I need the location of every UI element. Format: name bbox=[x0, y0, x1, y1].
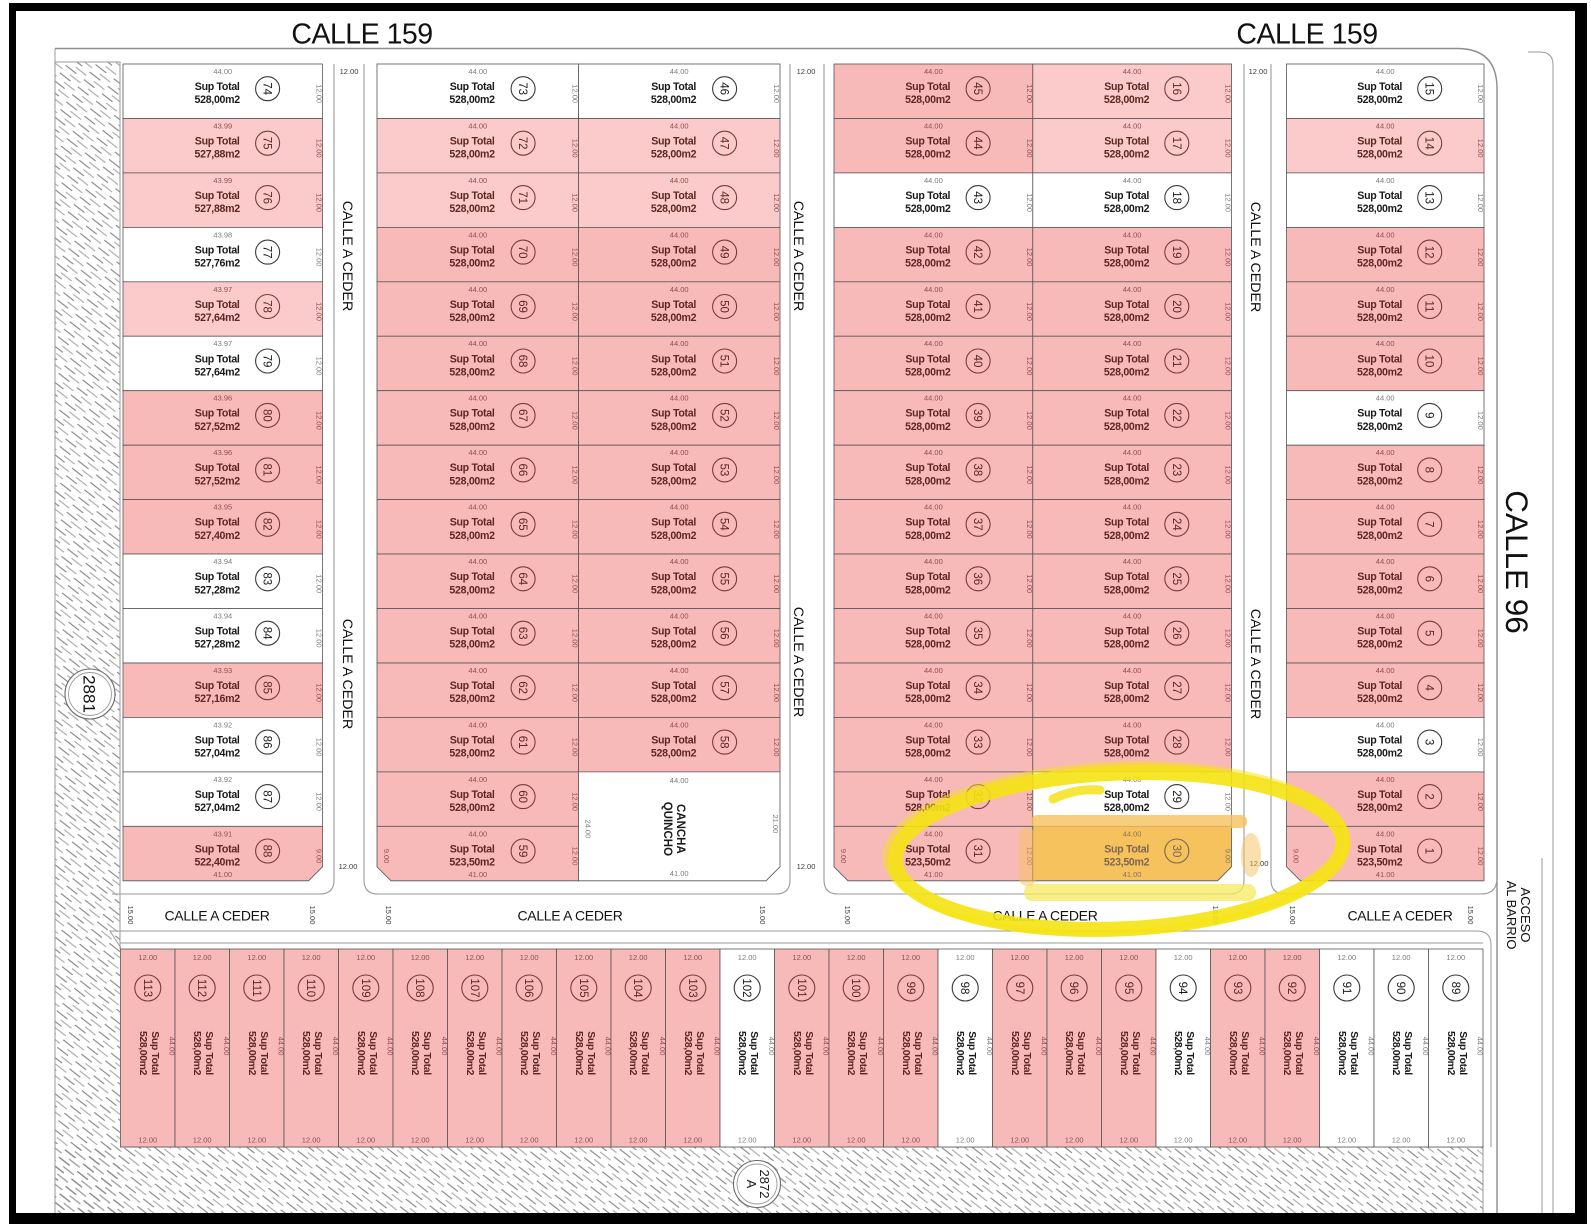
svg-text:44.00: 44.00 bbox=[924, 775, 943, 784]
svg-text:29: 29 bbox=[1170, 790, 1182, 803]
svg-text:44.00: 44.00 bbox=[1376, 67, 1395, 76]
svg-text:12.00: 12.00 bbox=[792, 953, 811, 962]
svg-text:528,00m2: 528,00m2 bbox=[1104, 258, 1150, 270]
svg-text:Sup Total: Sup Total bbox=[195, 299, 240, 311]
svg-text:528,00m2: 528,00m2 bbox=[651, 149, 697, 161]
svg-text:100: 100 bbox=[849, 978, 861, 997]
svg-text:46: 46 bbox=[718, 82, 730, 95]
svg-text:43.92: 43.92 bbox=[213, 775, 232, 784]
svg-text:CALLE A CEDER: CALLE A CEDER bbox=[339, 201, 355, 311]
svg-text:Sup Total: Sup Total bbox=[1357, 81, 1402, 93]
svg-text:89: 89 bbox=[1449, 982, 1461, 995]
svg-text:10: 10 bbox=[1423, 355, 1435, 368]
svg-text:528,00m2: 528,00m2 bbox=[1357, 94, 1403, 106]
svg-text:12.00: 12.00 bbox=[1476, 248, 1485, 267]
svg-text:12.00: 12.00 bbox=[1228, 1136, 1247, 1145]
svg-text:528,00m2: 528,00m2 bbox=[845, 1031, 857, 1076]
svg-text:Sup Total: Sup Total bbox=[651, 353, 696, 365]
svg-text:81: 81 bbox=[261, 464, 273, 477]
svg-text:44.00: 44.00 bbox=[670, 67, 689, 76]
svg-text:528,00m2: 528,00m2 bbox=[1104, 802, 1150, 814]
svg-text:12.00: 12.00 bbox=[315, 248, 324, 267]
svg-text:12.00: 12.00 bbox=[738, 1136, 757, 1145]
svg-text:528,00m2: 528,00m2 bbox=[1104, 475, 1150, 487]
svg-text:CANCHA: CANCHA bbox=[674, 804, 686, 854]
svg-text:69: 69 bbox=[516, 300, 528, 313]
svg-text:41: 41 bbox=[971, 300, 983, 313]
svg-text:47: 47 bbox=[718, 137, 730, 150]
svg-text:528,00m2: 528,00m2 bbox=[518, 1031, 530, 1076]
svg-text:12.00: 12.00 bbox=[1476, 84, 1485, 103]
svg-text:43.91: 43.91 bbox=[213, 829, 232, 838]
svg-text:12.00: 12.00 bbox=[1392, 1136, 1411, 1145]
svg-text:44.00: 44.00 bbox=[468, 829, 487, 838]
svg-text:Sup Total: Sup Total bbox=[1104, 571, 1149, 583]
svg-text:12.00: 12.00 bbox=[772, 248, 781, 267]
svg-text:8: 8 bbox=[1423, 467, 1435, 473]
svg-text:528,00m2: 528,00m2 bbox=[954, 1031, 966, 1076]
svg-text:12.00: 12.00 bbox=[901, 953, 920, 962]
svg-text:41.00: 41.00 bbox=[1376, 870, 1395, 879]
svg-text:43.97: 43.97 bbox=[213, 285, 232, 294]
svg-text:43.93: 43.93 bbox=[213, 666, 232, 675]
svg-text:Sup Total: Sup Total bbox=[367, 1031, 379, 1075]
svg-text:Sup Total: Sup Total bbox=[651, 517, 696, 529]
svg-text:Sup Total: Sup Total bbox=[450, 81, 495, 93]
svg-text:12.00: 12.00 bbox=[1476, 357, 1485, 376]
svg-text:44.00: 44.00 bbox=[924, 339, 943, 348]
svg-text:12.00: 12.00 bbox=[1283, 1136, 1302, 1145]
svg-text:528,00m2: 528,00m2 bbox=[905, 748, 951, 760]
svg-text:Sup Total: Sup Total bbox=[1104, 353, 1149, 365]
svg-text:54: 54 bbox=[718, 518, 730, 531]
svg-text:12.00: 12.00 bbox=[772, 520, 781, 539]
svg-text:41.00: 41.00 bbox=[1123, 870, 1142, 879]
svg-text:527,28m2: 527,28m2 bbox=[195, 639, 241, 651]
svg-text:12.00: 12.00 bbox=[520, 953, 539, 962]
svg-text:44.00: 44.00 bbox=[468, 339, 487, 348]
svg-text:43.99: 43.99 bbox=[213, 121, 232, 130]
svg-text:Sup Total: Sup Total bbox=[1104, 244, 1149, 256]
svg-text:15: 15 bbox=[1423, 82, 1435, 95]
svg-text:44.00: 44.00 bbox=[670, 339, 689, 348]
svg-text:6: 6 bbox=[1423, 576, 1435, 582]
svg-text:12.00: 12.00 bbox=[315, 84, 324, 103]
svg-text:12.00: 12.00 bbox=[797, 862, 816, 871]
svg-text:528,00m2: 528,00m2 bbox=[1357, 149, 1403, 161]
svg-text:Sup Total: Sup Total bbox=[905, 136, 950, 148]
svg-text:Sup Total: Sup Total bbox=[1357, 843, 1402, 855]
svg-text:527,28m2: 527,28m2 bbox=[195, 584, 241, 596]
svg-text:26: 26 bbox=[1170, 627, 1182, 640]
svg-text:12: 12 bbox=[1423, 246, 1435, 259]
svg-text:528,00m2: 528,00m2 bbox=[409, 1031, 421, 1076]
svg-text:CALLE A CEDER: CALLE A CEDER bbox=[517, 908, 622, 924]
svg-text:Sup Total: Sup Total bbox=[1104, 462, 1149, 474]
svg-text:44.00: 44.00 bbox=[1376, 666, 1395, 675]
svg-text:QUINCHO: QUINCHO bbox=[661, 802, 673, 856]
svg-text:44.00: 44.00 bbox=[468, 612, 487, 621]
svg-text:44.00: 44.00 bbox=[1376, 612, 1395, 621]
svg-text:Sup Total: Sup Total bbox=[1357, 517, 1402, 529]
svg-text:527,52m2: 527,52m2 bbox=[195, 421, 241, 433]
svg-text:20: 20 bbox=[1170, 300, 1182, 313]
svg-text:Sup Total: Sup Total bbox=[905, 571, 950, 583]
svg-text:Sup Total: Sup Total bbox=[905, 734, 950, 746]
svg-text:12.00: 12.00 bbox=[772, 84, 781, 103]
svg-text:83: 83 bbox=[261, 572, 273, 585]
svg-text:44.00: 44.00 bbox=[924, 557, 943, 566]
svg-text:CALLE A CEDER: CALLE A CEDER bbox=[1247, 609, 1263, 719]
svg-text:31: 31 bbox=[971, 845, 983, 858]
svg-text:528,00m2: 528,00m2 bbox=[1357, 258, 1403, 270]
svg-text:Sup Total: Sup Total bbox=[905, 81, 950, 93]
svg-text:Sup Total: Sup Total bbox=[450, 789, 495, 801]
svg-text:Sup Total: Sup Total bbox=[1357, 190, 1402, 202]
svg-text:44.00: 44.00 bbox=[1376, 775, 1395, 784]
svg-text:12.00: 12.00 bbox=[772, 629, 781, 648]
svg-text:528,00m2: 528,00m2 bbox=[191, 1031, 203, 1076]
svg-text:2: 2 bbox=[1423, 793, 1435, 799]
svg-text:60: 60 bbox=[516, 790, 528, 803]
svg-text:12.00: 12.00 bbox=[574, 953, 593, 962]
svg-text:12.00: 12.00 bbox=[340, 67, 359, 76]
svg-text:Sup Total: Sup Total bbox=[651, 190, 696, 202]
svg-text:44.00: 44.00 bbox=[468, 448, 487, 457]
svg-text:Sup Total: Sup Total bbox=[1104, 408, 1149, 420]
svg-text:34: 34 bbox=[971, 681, 983, 694]
svg-text:21.00: 21.00 bbox=[771, 815, 780, 834]
svg-text:528,00m2: 528,00m2 bbox=[1104, 367, 1150, 379]
svg-text:74: 74 bbox=[261, 82, 273, 95]
svg-text:106: 106 bbox=[522, 978, 534, 997]
svg-text:528,00m2: 528,00m2 bbox=[449, 802, 495, 814]
svg-text:44.00: 44.00 bbox=[1123, 339, 1142, 348]
svg-text:528,00m2: 528,00m2 bbox=[449, 149, 495, 161]
svg-text:78: 78 bbox=[261, 300, 273, 313]
svg-text:CALLE A CEDER: CALLE A CEDER bbox=[1347, 908, 1452, 924]
svg-text:44.00: 44.00 bbox=[1476, 1037, 1485, 1056]
svg-text:12.00: 12.00 bbox=[847, 953, 866, 962]
svg-text:25: 25 bbox=[1170, 572, 1182, 585]
svg-text:Sup Total: Sup Total bbox=[450, 734, 495, 746]
svg-text:67: 67 bbox=[516, 409, 528, 422]
svg-text:528,00m2: 528,00m2 bbox=[449, 312, 495, 324]
svg-text:Sup Total: Sup Total bbox=[748, 1031, 760, 1075]
svg-text:528,00m2: 528,00m2 bbox=[449, 367, 495, 379]
svg-text:44.00: 44.00 bbox=[1123, 612, 1142, 621]
svg-text:9.00: 9.00 bbox=[315, 849, 324, 864]
svg-text:528,00m2: 528,00m2 bbox=[900, 1031, 912, 1076]
svg-text:24: 24 bbox=[1170, 518, 1182, 531]
svg-text:528,00m2: 528,00m2 bbox=[449, 584, 495, 596]
svg-text:15.00: 15.00 bbox=[1288, 906, 1297, 925]
svg-text:76: 76 bbox=[261, 191, 273, 204]
svg-text:111: 111 bbox=[250, 979, 262, 996]
svg-text:528,00m2: 528,00m2 bbox=[449, 203, 495, 215]
svg-text:13: 13 bbox=[1423, 191, 1435, 204]
svg-text:528,00m2: 528,00m2 bbox=[1118, 1031, 1130, 1076]
svg-text:Sup Total: Sup Total bbox=[195, 408, 240, 420]
svg-text:ACCESO: ACCESO bbox=[1518, 888, 1533, 943]
svg-text:12.00: 12.00 bbox=[956, 1136, 975, 1145]
svg-text:44.00: 44.00 bbox=[1123, 448, 1142, 457]
svg-text:528,00m2: 528,00m2 bbox=[449, 475, 495, 487]
svg-text:528,00m2: 528,00m2 bbox=[1104, 639, 1150, 651]
svg-text:84: 84 bbox=[261, 627, 273, 640]
svg-text:57: 57 bbox=[718, 681, 730, 694]
svg-text:12.00: 12.00 bbox=[1476, 738, 1485, 757]
svg-text:12.00: 12.00 bbox=[315, 139, 324, 158]
svg-text:527,64m2: 527,64m2 bbox=[195, 367, 241, 379]
svg-text:528,00m2: 528,00m2 bbox=[905, 639, 951, 651]
svg-text:14: 14 bbox=[1423, 137, 1435, 150]
svg-text:523,50m2: 523,50m2 bbox=[1357, 857, 1403, 869]
svg-text:23: 23 bbox=[1170, 464, 1182, 477]
svg-text:43.94: 43.94 bbox=[213, 612, 232, 621]
svg-text:527,16m2: 527,16m2 bbox=[195, 693, 241, 705]
svg-text:12.00: 12.00 bbox=[1476, 629, 1485, 648]
svg-text:12.00: 12.00 bbox=[772, 302, 781, 321]
svg-text:15.00: 15.00 bbox=[843, 906, 852, 925]
svg-text:12.00: 12.00 bbox=[315, 792, 324, 811]
svg-text:Sup Total: Sup Total bbox=[195, 734, 240, 746]
svg-text:Sup Total: Sup Total bbox=[905, 408, 950, 420]
svg-text:91: 91 bbox=[1340, 982, 1352, 995]
svg-text:528,00m2: 528,00m2 bbox=[651, 203, 697, 215]
svg-text:12.00: 12.00 bbox=[1283, 953, 1302, 962]
svg-text:A: A bbox=[744, 1180, 759, 1189]
svg-text:44.00: 44.00 bbox=[670, 230, 689, 239]
svg-text:44.00: 44.00 bbox=[1123, 557, 1142, 566]
svg-text:66: 66 bbox=[516, 464, 528, 477]
svg-text:Sup Total: Sup Total bbox=[905, 244, 950, 256]
svg-text:Sup Total: Sup Total bbox=[195, 190, 240, 202]
svg-text:65: 65 bbox=[516, 518, 528, 531]
svg-text:12.00: 12.00 bbox=[1337, 953, 1356, 962]
svg-text:12.00: 12.00 bbox=[1476, 411, 1485, 430]
svg-text:93: 93 bbox=[1231, 982, 1243, 995]
svg-text:Sup Total: Sup Total bbox=[195, 136, 240, 148]
svg-text:CALLE A CEDER: CALLE A CEDER bbox=[339, 619, 355, 729]
svg-text:528,00m2: 528,00m2 bbox=[1357, 203, 1403, 215]
svg-text:38: 38 bbox=[971, 464, 983, 477]
svg-text:Sup Total: Sup Total bbox=[421, 1031, 433, 1075]
svg-text:Sup Total: Sup Total bbox=[1293, 1031, 1305, 1075]
svg-text:12.00: 12.00 bbox=[1224, 139, 1233, 158]
svg-text:12.00: 12.00 bbox=[339, 862, 358, 871]
svg-text:12.00: 12.00 bbox=[1224, 248, 1233, 267]
svg-text:Sup Total: Sup Total bbox=[1104, 299, 1149, 311]
svg-text:528,00m2: 528,00m2 bbox=[651, 367, 697, 379]
svg-text:44.00: 44.00 bbox=[670, 666, 689, 675]
svg-text:Sup Total: Sup Total bbox=[195, 517, 240, 529]
svg-text:90: 90 bbox=[1394, 982, 1406, 995]
svg-text:527,88m2: 527,88m2 bbox=[195, 149, 241, 161]
svg-text:19: 19 bbox=[1170, 246, 1182, 259]
svg-text:Sup Total: Sup Total bbox=[1184, 1031, 1196, 1075]
svg-text:21: 21 bbox=[1170, 355, 1182, 368]
svg-text:44.00: 44.00 bbox=[468, 666, 487, 675]
svg-text:12.00: 12.00 bbox=[193, 1136, 212, 1145]
svg-text:12.00: 12.00 bbox=[1224, 683, 1233, 702]
svg-text:12.00: 12.00 bbox=[315, 411, 324, 430]
svg-text:102: 102 bbox=[740, 978, 752, 997]
svg-text:Sup Total: Sup Total bbox=[195, 680, 240, 692]
svg-text:44.00: 44.00 bbox=[924, 285, 943, 294]
svg-text:Sup Total: Sup Total bbox=[450, 136, 495, 148]
svg-text:12.00: 12.00 bbox=[772, 683, 781, 702]
svg-text:12.00: 12.00 bbox=[1119, 1136, 1138, 1145]
svg-text:Sup Total: Sup Total bbox=[195, 789, 240, 801]
svg-text:59: 59 bbox=[516, 845, 528, 858]
svg-text:44.00: 44.00 bbox=[1123, 394, 1142, 403]
svg-text:27: 27 bbox=[1170, 681, 1182, 694]
svg-text:44.00: 44.00 bbox=[924, 829, 943, 838]
svg-text:55: 55 bbox=[718, 572, 730, 585]
svg-text:Sup Total: Sup Total bbox=[1130, 1031, 1142, 1075]
svg-text:12.00: 12.00 bbox=[1476, 792, 1485, 811]
svg-text:Sup Total: Sup Total bbox=[450, 680, 495, 692]
svg-text:7: 7 bbox=[1423, 521, 1435, 527]
svg-text:528,00m2: 528,00m2 bbox=[905, 149, 951, 161]
svg-text:44.00: 44.00 bbox=[924, 720, 943, 729]
svg-text:98: 98 bbox=[958, 982, 970, 995]
svg-text:12.00: 12.00 bbox=[1249, 67, 1268, 76]
svg-text:44.00: 44.00 bbox=[1376, 230, 1395, 239]
svg-text:44.00: 44.00 bbox=[924, 121, 943, 130]
svg-text:528,00m2: 528,00m2 bbox=[1357, 693, 1403, 705]
svg-text:44.00: 44.00 bbox=[1123, 176, 1142, 185]
svg-text:12.00: 12.00 bbox=[772, 466, 781, 485]
svg-text:Sup Total: Sup Total bbox=[195, 81, 240, 93]
svg-text:44.00: 44.00 bbox=[924, 230, 943, 239]
svg-text:528,00m2: 528,00m2 bbox=[449, 748, 495, 760]
svg-text:528,00m2: 528,00m2 bbox=[1390, 1031, 1402, 1076]
svg-text:Sup Total: Sup Total bbox=[905, 353, 950, 365]
svg-text:528,00m2: 528,00m2 bbox=[905, 584, 951, 596]
svg-text:12.00: 12.00 bbox=[315, 302, 324, 321]
svg-text:12.00: 12.00 bbox=[193, 953, 212, 962]
svg-text:43.92: 43.92 bbox=[213, 720, 232, 729]
svg-text:Sup Total: Sup Total bbox=[1357, 353, 1402, 365]
svg-text:Sup Total: Sup Total bbox=[195, 462, 240, 474]
svg-text:44.00: 44.00 bbox=[468, 121, 487, 130]
svg-text:528,00m2: 528,00m2 bbox=[195, 94, 241, 106]
svg-text:Sup Total: Sup Total bbox=[450, 408, 495, 420]
svg-text:9.00: 9.00 bbox=[1224, 849, 1233, 864]
svg-text:12.00: 12.00 bbox=[1065, 953, 1084, 962]
svg-text:44.00: 44.00 bbox=[1376, 285, 1395, 294]
svg-text:12.00: 12.00 bbox=[1065, 1136, 1084, 1145]
svg-text:97: 97 bbox=[1013, 982, 1025, 995]
svg-text:12.00: 12.00 bbox=[1174, 1136, 1193, 1145]
svg-text:528,00m2: 528,00m2 bbox=[300, 1031, 312, 1076]
svg-text:528,00m2: 528,00m2 bbox=[1281, 1031, 1293, 1076]
svg-text:528,00m2: 528,00m2 bbox=[1357, 475, 1403, 487]
svg-text:528,00m2: 528,00m2 bbox=[449, 258, 495, 270]
svg-text:Sup Total: Sup Total bbox=[476, 1031, 488, 1075]
svg-text:Sup Total: Sup Total bbox=[857, 1031, 869, 1075]
svg-text:44.00: 44.00 bbox=[468, 394, 487, 403]
svg-text:527,04m2: 527,04m2 bbox=[195, 748, 241, 760]
svg-text:75: 75 bbox=[261, 137, 273, 150]
svg-text:62: 62 bbox=[516, 681, 528, 694]
svg-text:Sup Total: Sup Total bbox=[585, 1031, 597, 1075]
svg-text:44.00: 44.00 bbox=[1376, 448, 1395, 457]
svg-text:528,00m2: 528,00m2 bbox=[651, 421, 697, 433]
svg-text:12.00: 12.00 bbox=[1224, 792, 1233, 811]
svg-text:528,00m2: 528,00m2 bbox=[1104, 203, 1150, 215]
svg-text:Sup Total: Sup Total bbox=[1104, 843, 1149, 855]
svg-text:22: 22 bbox=[1170, 409, 1182, 422]
svg-text:CALLE A CEDER: CALLE A CEDER bbox=[790, 201, 806, 311]
svg-text:79: 79 bbox=[261, 355, 273, 368]
svg-text:44.00: 44.00 bbox=[1376, 503, 1395, 512]
svg-text:Sup Total: Sup Total bbox=[1357, 136, 1402, 148]
svg-text:12.00: 12.00 bbox=[772, 411, 781, 430]
svg-text:16: 16 bbox=[1170, 82, 1182, 95]
svg-text:Sup Total: Sup Total bbox=[905, 190, 950, 202]
svg-text:2881: 2881 bbox=[80, 675, 99, 713]
svg-text:12.00: 12.00 bbox=[1476, 466, 1485, 485]
svg-text:61: 61 bbox=[516, 736, 528, 749]
svg-text:Sup Total: Sup Total bbox=[639, 1031, 651, 1075]
svg-text:528,00m2: 528,00m2 bbox=[905, 203, 951, 215]
svg-text:528,00m2: 528,00m2 bbox=[137, 1031, 149, 1076]
svg-text:12.00: 12.00 bbox=[1224, 738, 1233, 757]
svg-text:12.00: 12.00 bbox=[738, 953, 757, 962]
svg-text:44.00: 44.00 bbox=[1123, 230, 1142, 239]
svg-text:44.00: 44.00 bbox=[468, 720, 487, 729]
svg-text:39: 39 bbox=[971, 409, 983, 422]
svg-text:63: 63 bbox=[516, 627, 528, 640]
svg-text:Sup Total: Sup Total bbox=[651, 626, 696, 638]
svg-text:12.00: 12.00 bbox=[901, 1136, 920, 1145]
svg-text:44.00: 44.00 bbox=[1376, 557, 1395, 566]
svg-text:12.00: 12.00 bbox=[1476, 574, 1485, 593]
svg-text:CALLE A CEDER: CALLE A CEDER bbox=[164, 908, 269, 924]
svg-text:12.00: 12.00 bbox=[683, 953, 702, 962]
svg-text:528,00m2: 528,00m2 bbox=[905, 421, 951, 433]
svg-text:528,00m2: 528,00m2 bbox=[1357, 367, 1403, 379]
svg-text:528,00m2: 528,00m2 bbox=[905, 475, 951, 487]
svg-text:528,00m2: 528,00m2 bbox=[573, 1031, 585, 1076]
svg-text:44.00: 44.00 bbox=[468, 176, 487, 185]
svg-text:523,50m2: 523,50m2 bbox=[1104, 857, 1150, 869]
svg-text:12.00: 12.00 bbox=[1446, 953, 1465, 962]
svg-text:44.00: 44.00 bbox=[670, 503, 689, 512]
svg-text:Sup Total: Sup Total bbox=[651, 408, 696, 420]
svg-text:12.00: 12.00 bbox=[315, 357, 324, 376]
svg-text:528,00m2: 528,00m2 bbox=[464, 1031, 476, 1076]
svg-text:Sup Total: Sup Total bbox=[195, 626, 240, 638]
svg-text:85: 85 bbox=[261, 681, 273, 694]
svg-text:528,00m2: 528,00m2 bbox=[905, 312, 951, 324]
svg-text:Sup Total: Sup Total bbox=[203, 1031, 215, 1075]
svg-text:CALLE 159: CALLE 159 bbox=[1236, 19, 1377, 51]
svg-text:527,64m2: 527,64m2 bbox=[195, 312, 241, 324]
svg-text:Sup Total: Sup Total bbox=[905, 299, 950, 311]
svg-text:Sup Total: Sup Total bbox=[905, 680, 950, 692]
svg-text:Sup Total: Sup Total bbox=[450, 517, 495, 529]
svg-text:Sup Total: Sup Total bbox=[1357, 299, 1402, 311]
svg-text:528,00m2: 528,00m2 bbox=[736, 1031, 748, 1076]
svg-text:528,00m2: 528,00m2 bbox=[905, 693, 951, 705]
svg-text:Sup Total: Sup Total bbox=[195, 244, 240, 256]
svg-text:528,00m2: 528,00m2 bbox=[1357, 421, 1403, 433]
svg-text:527,88m2: 527,88m2 bbox=[195, 203, 241, 215]
